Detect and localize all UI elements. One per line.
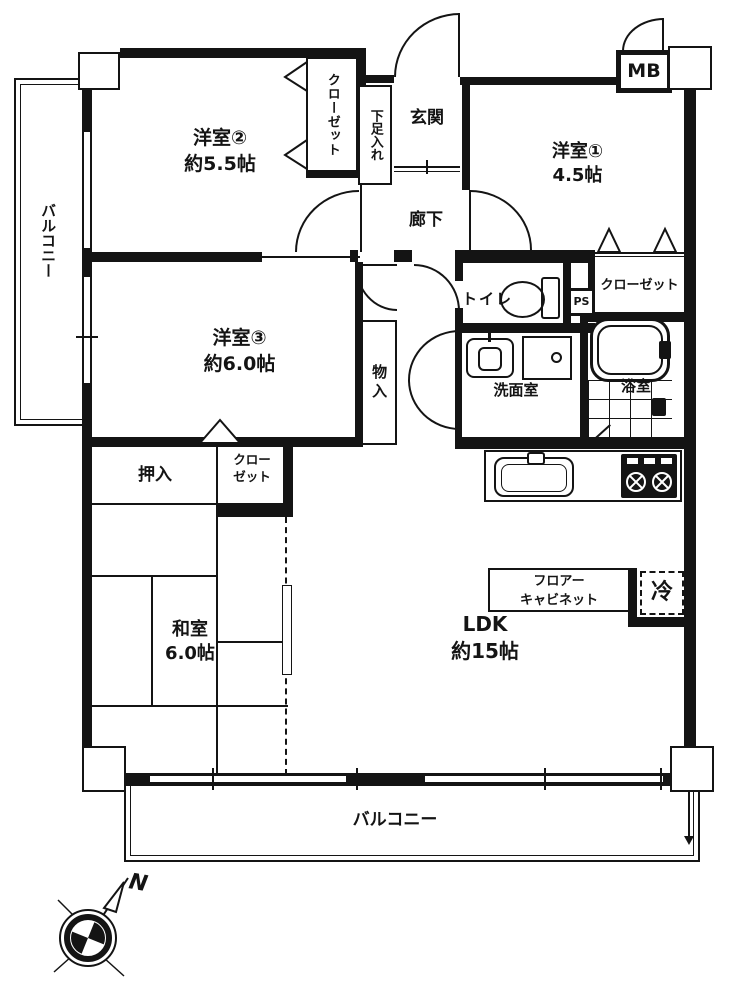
tatami-line <box>92 705 288 707</box>
hallway-text: 廊下 <box>409 209 443 232</box>
wall <box>628 617 684 627</box>
wall <box>455 250 595 263</box>
entrance-text: 玄関 <box>410 107 444 130</box>
hallway-door-arc <box>414 264 460 311</box>
toilet-label: トイレ <box>462 289 513 309</box>
storage-monoire: 物入 <box>361 320 397 445</box>
ldk-double-door-arc-bottom <box>408 380 460 430</box>
room-label-entrance: 玄関 <box>396 106 458 130</box>
pipe-shaft: PS <box>568 288 595 316</box>
wall <box>394 250 412 262</box>
room-name: 洋室③ <box>162 326 317 352</box>
room-label-hallway: 廊下 <box>396 208 456 232</box>
wall-tick <box>212 768 214 790</box>
compass-rose: N <box>40 868 155 988</box>
oshiire-label: 押入 <box>138 464 172 487</box>
hatch-arrow-head <box>684 836 694 845</box>
pillar <box>78 52 120 90</box>
gas-stove-icon <box>620 453 678 499</box>
balcony-bottom-label: バルコニー <box>325 808 465 832</box>
shoe-cabinet-label: 下足入れ <box>366 109 384 161</box>
bathroom-label: 浴室 <box>604 376 668 396</box>
window <box>150 776 346 782</box>
oshiire-front-line <box>92 503 218 505</box>
wall-tick <box>426 160 428 174</box>
shoe-cabinet: 下足入れ <box>358 85 392 185</box>
floor-cabinet-line1: フロアー <box>490 573 628 592</box>
room-size: 約15帖 <box>430 638 540 665</box>
window <box>84 132 90 248</box>
room-label-ldk: LDK 約15帖 <box>430 611 540 665</box>
wall <box>580 322 588 447</box>
hatch-arrow-line <box>688 792 690 836</box>
pillar <box>668 46 712 90</box>
wall-tick <box>356 768 358 790</box>
wall <box>92 252 262 262</box>
fusuma-panel <box>282 585 292 675</box>
balcony-left-text: バルコニー <box>38 203 58 278</box>
window <box>84 277 90 383</box>
shower-unit-icon <box>652 398 666 416</box>
wall <box>218 503 293 517</box>
room-label-japanese: 和室 6.0帖 <box>148 618 232 667</box>
room-size: 約6.0帖 <box>162 352 317 378</box>
folding-door-icon <box>596 226 622 254</box>
entrance-door-arc <box>394 13 460 77</box>
tatami-line <box>92 575 218 577</box>
room-size: 4.5帖 <box>520 164 635 188</box>
room-label-western1: 洋室① 4.5帖 <box>520 140 635 189</box>
wall <box>462 85 470 190</box>
ldk-double-door-arc-top <box>408 330 460 380</box>
washing-machine-pan-icon <box>522 336 572 380</box>
western2-door-arc <box>295 190 359 252</box>
wall <box>455 263 463 281</box>
refrigerator-space: 冷 <box>640 571 684 615</box>
room-label-western3: 洋室③ 約6.0帖 <box>162 326 317 377</box>
wall-tick <box>660 768 662 790</box>
closet-western2: クローゼット <box>306 57 358 172</box>
floor-cabinet-line2: キャビネット <box>490 592 628 611</box>
closet-label-line2: ゼット <box>220 469 284 486</box>
wall-tick <box>544 768 546 790</box>
door-opening-line <box>262 256 360 258</box>
storage-monoire-label: 物入 <box>369 364 389 402</box>
balcony-bottom-text: バルコニー <box>353 809 438 832</box>
kitchen-sink-inner-icon <box>501 464 567 492</box>
bathroom-text: 浴室 <box>621 376 651 396</box>
room-label-western2: 洋室② 約5.5帖 <box>145 126 295 177</box>
meter-box: MB <box>616 50 672 93</box>
wall <box>366 75 394 83</box>
pillar <box>670 746 714 792</box>
oshiire-divider <box>216 447 218 503</box>
folding-door-icon <box>198 417 242 445</box>
washroom-label: 洗面室 <box>470 380 562 400</box>
bathtub-inner-icon <box>597 325 663 375</box>
room-size: 約5.5帖 <box>145 152 295 178</box>
meter-box-label: MB <box>627 59 660 85</box>
folding-door-icon <box>282 60 308 92</box>
wall <box>455 437 684 449</box>
pillar <box>82 746 126 792</box>
pipe-shaft-label: PS <box>574 295 590 310</box>
room-size: 6.0帖 <box>148 642 232 666</box>
toilet-text: トイレ <box>462 290 513 308</box>
closet-label: クローゼット <box>323 73 341 157</box>
mb-door-arc <box>622 18 664 51</box>
bath-faucet-icon <box>659 341 671 359</box>
wall-tick <box>76 336 98 338</box>
folding-door-icon <box>652 226 678 254</box>
kitchen-faucet-icon <box>527 452 545 465</box>
balcony-left-label: バルコニー <box>36 145 60 335</box>
washbasin-bowl-icon <box>478 347 502 371</box>
closet-label: クローゼット <box>600 277 678 295</box>
room-name: 洋室① <box>520 140 635 164</box>
oshiire: 押入 <box>110 464 200 486</box>
wall <box>455 323 595 333</box>
door-leaf <box>360 185 362 252</box>
compass-north-label: N <box>127 869 149 897</box>
wall <box>460 77 618 85</box>
washbasin-faucet-icon <box>488 332 491 342</box>
room-name: 和室 <box>148 618 232 642</box>
western1-door-arc <box>470 190 532 250</box>
closet-western1: クローゼット <box>595 277 684 295</box>
room-name: LDK <box>430 611 540 638</box>
refrigerator-label: 冷 <box>651 578 673 608</box>
washing-machine-drain-icon <box>551 352 562 363</box>
wall <box>684 88 696 780</box>
floor-cabinet: フロアー キャビネット <box>488 568 630 612</box>
closet-japanese-room: クロー ゼット <box>220 452 284 496</box>
washroom-text: 洗面室 <box>493 380 538 400</box>
room-name: 洋室② <box>145 126 295 152</box>
closet-label-line1: クロー <box>220 452 284 469</box>
folding-door-line <box>595 256 684 257</box>
floor-plan: クローゼット 下足入れ 物入 クローゼット クロー ゼット 押入 MB PS 冷… <box>0 0 735 1000</box>
